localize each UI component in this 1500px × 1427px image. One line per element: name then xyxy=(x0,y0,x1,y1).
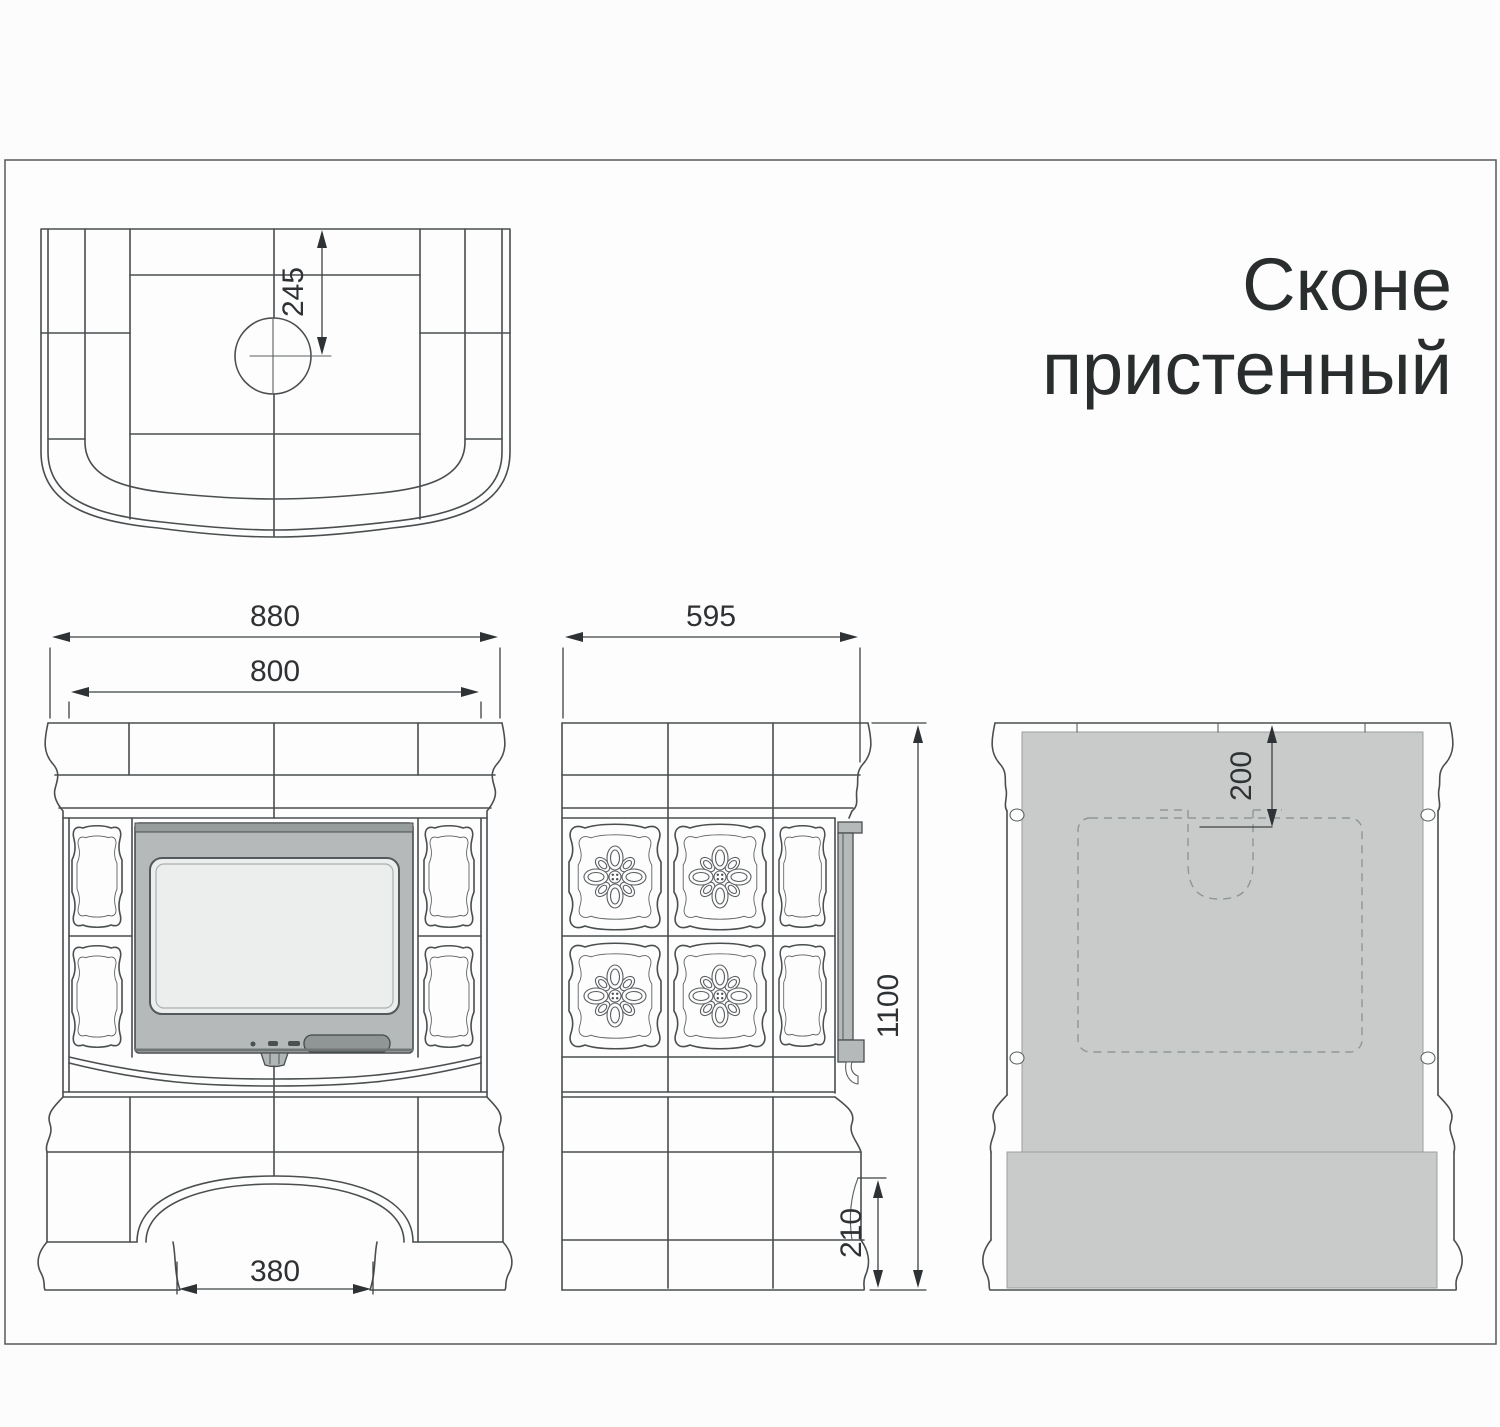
drawing-title-line2: пристенный xyxy=(1042,327,1452,410)
technical-drawing: 245 xyxy=(0,0,1500,1427)
fire-door xyxy=(135,823,413,1067)
dim-value-245: 245 xyxy=(277,267,310,317)
dim-value-880: 880 xyxy=(250,600,300,633)
dim-value-200: 200 xyxy=(1225,751,1258,801)
door-control-dot xyxy=(251,1042,256,1047)
dim-value-800: 800 xyxy=(250,655,300,688)
door-control-mark xyxy=(288,1041,300,1046)
dim-value-380: 380 xyxy=(250,1255,300,1288)
back-view: 200 xyxy=(983,723,1462,1290)
column-bead xyxy=(1421,809,1435,821)
drawing-title-line1: Сконе xyxy=(1242,243,1452,326)
column-bead xyxy=(1010,1052,1024,1064)
dim-value-210: 210 xyxy=(835,1208,868,1258)
dim-value-1100: 1100 xyxy=(872,974,905,1039)
column-bead xyxy=(1010,809,1024,821)
door-glass xyxy=(150,858,399,1014)
door-knob xyxy=(261,1053,288,1067)
door-control-mark xyxy=(268,1041,278,1046)
back-base-shield xyxy=(1007,1152,1437,1288)
dim-value-595: 595 xyxy=(686,600,736,633)
column-bead xyxy=(1421,1052,1435,1064)
back-heat-shield xyxy=(1022,732,1423,1152)
drawing-page: 245 xyxy=(0,0,1500,1427)
door-top-bar xyxy=(135,823,413,832)
